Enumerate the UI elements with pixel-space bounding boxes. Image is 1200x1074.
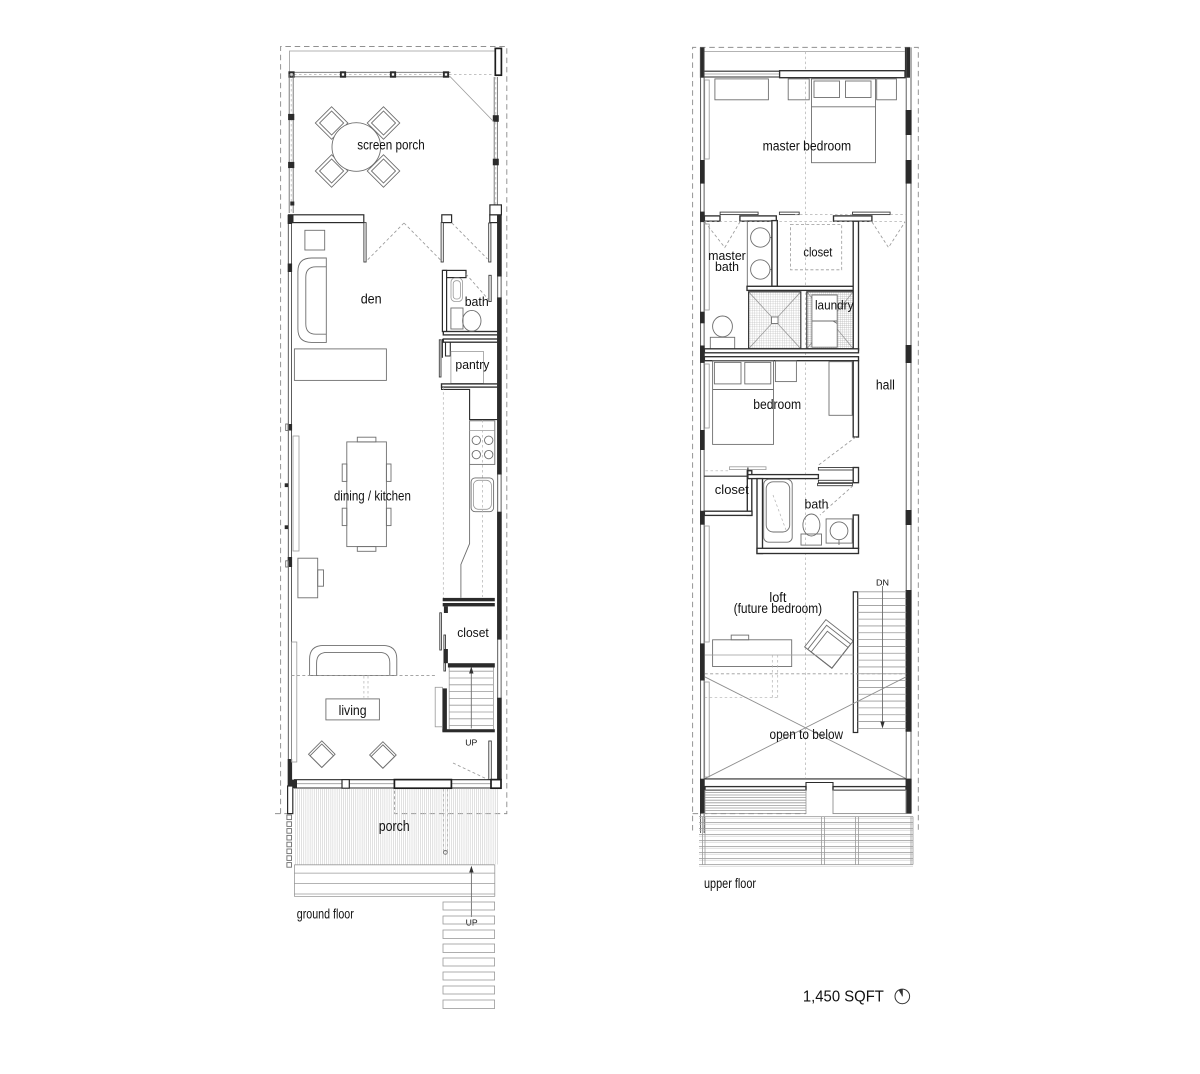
svg-text:ground floor: ground floor <box>297 907 354 922</box>
svg-text:bedroom: bedroom <box>753 397 801 412</box>
svg-text:closet: closet <box>803 245 832 260</box>
svg-text:bath: bath <box>715 259 739 274</box>
svg-text:pantry: pantry <box>455 357 489 372</box>
svg-text:closet: closet <box>457 625 489 640</box>
svg-text:1,450 SQFT: 1,450 SQFT <box>803 989 884 1006</box>
svg-text:dining / kitchen: dining / kitchen <box>334 489 411 504</box>
svg-text:bath: bath <box>805 497 829 512</box>
svg-text:open to below: open to below <box>770 727 844 742</box>
svg-text:laundry: laundry <box>815 298 854 313</box>
svg-text:living: living <box>339 703 367 718</box>
svg-text:master bedroom: master bedroom <box>763 139 852 154</box>
svg-text:DN: DN <box>876 578 889 588</box>
svg-text:screen porch: screen porch <box>357 137 425 152</box>
svg-text:hall: hall <box>876 377 895 392</box>
svg-text:(future bedroom): (future bedroom) <box>734 601 823 616</box>
svg-text:upper floor: upper floor <box>704 876 756 891</box>
svg-text:UP: UP <box>466 918 478 928</box>
svg-text:closet: closet <box>715 482 749 497</box>
svg-text:porch: porch <box>379 818 410 835</box>
svg-text:UP: UP <box>465 738 477 748</box>
svg-text:den: den <box>361 292 382 307</box>
svg-text:bath: bath <box>465 294 489 309</box>
